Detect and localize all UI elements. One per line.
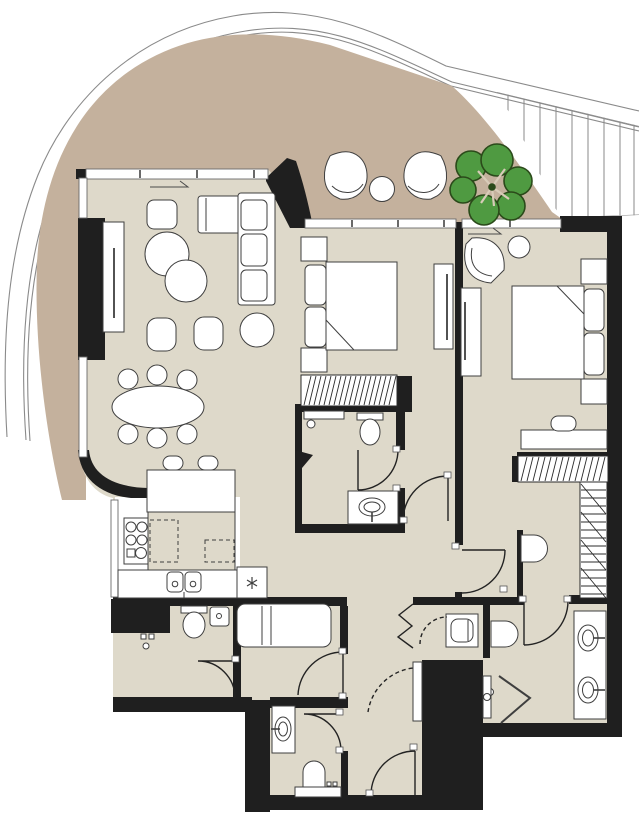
- pillow: [305, 265, 326, 305]
- pillow: [584, 333, 604, 375]
- living-west-window-lower: [79, 357, 87, 457]
- wall-basin: [521, 535, 548, 562]
- dining-chair: [147, 365, 167, 385]
- shower-head: [307, 420, 315, 428]
- armchair: [147, 200, 177, 229]
- bedroom2-window-band: [305, 219, 456, 228]
- pillow: [584, 289, 604, 331]
- living-west-pier: [78, 218, 105, 360]
- kitchen-west-window: [111, 500, 118, 597]
- pouf: [194, 317, 223, 350]
- hand-basin: [210, 607, 229, 626]
- tree-lobe: [497, 192, 525, 220]
- toilet: [303, 761, 325, 790]
- nightstand: [301, 348, 327, 372]
- service-shaft: [422, 660, 483, 810]
- counter-run: [148, 512, 235, 570]
- toilet-bowl: [360, 419, 380, 445]
- floor-plan-canvas: [0, 0, 639, 819]
- sofa-cushion: [241, 270, 267, 301]
- tree-trunk: [489, 184, 495, 190]
- bar-stool: [198, 456, 218, 470]
- dining-chair: [147, 428, 167, 448]
- living-window-band: [86, 169, 268, 179]
- dining-chair: [118, 369, 138, 389]
- pillow: [305, 307, 326, 347]
- dining-chair: [177, 370, 197, 390]
- side-table: [508, 236, 530, 258]
- single-daybed: [237, 604, 331, 647]
- tree-lobe: [504, 167, 532, 195]
- living-west-window-upper: [79, 178, 87, 218]
- chaise-ottoman: [198, 196, 242, 233]
- coffee-table: [165, 260, 207, 302]
- vanity2: [348, 491, 398, 524]
- nightstand: [581, 379, 607, 404]
- round-side-table: [370, 177, 395, 202]
- sink-bowl: [185, 572, 201, 592]
- shower-bar: [304, 411, 344, 419]
- dining-furniture: [112, 365, 204, 448]
- tv-dresser2: [434, 264, 453, 349]
- round-pouf: [240, 313, 274, 347]
- tv-dresser-master: [461, 288, 481, 376]
- ledge: [295, 787, 341, 797]
- dining-chair: [177, 424, 197, 444]
- sofa-cushion: [241, 234, 267, 266]
- desk-chair: [551, 416, 576, 431]
- pouf: [147, 318, 176, 351]
- toilet-bowl: [183, 612, 205, 638]
- duct-shaft: [111, 599, 170, 633]
- sofa-cushion: [241, 200, 267, 230]
- floor-plan-svg: [0, 0, 639, 819]
- desk: [521, 430, 607, 449]
- bedroom3-furniture: [237, 604, 331, 647]
- master-closet-top: [518, 456, 608, 482]
- wall-hung-toilet: [491, 621, 518, 647]
- pivot-door-leaf: [413, 662, 422, 721]
- nightstand: [581, 259, 607, 284]
- east-exterior-wall: [607, 230, 622, 737]
- island-counter: [147, 470, 235, 512]
- bedroom-divider-wall: [455, 222, 463, 545]
- tree-lobe: [450, 177, 476, 203]
- dining-table: [112, 386, 204, 428]
- sink-bowl: [167, 572, 183, 592]
- bar-stool: [163, 456, 183, 470]
- nightstand: [301, 237, 327, 261]
- dining-chair: [118, 424, 138, 444]
